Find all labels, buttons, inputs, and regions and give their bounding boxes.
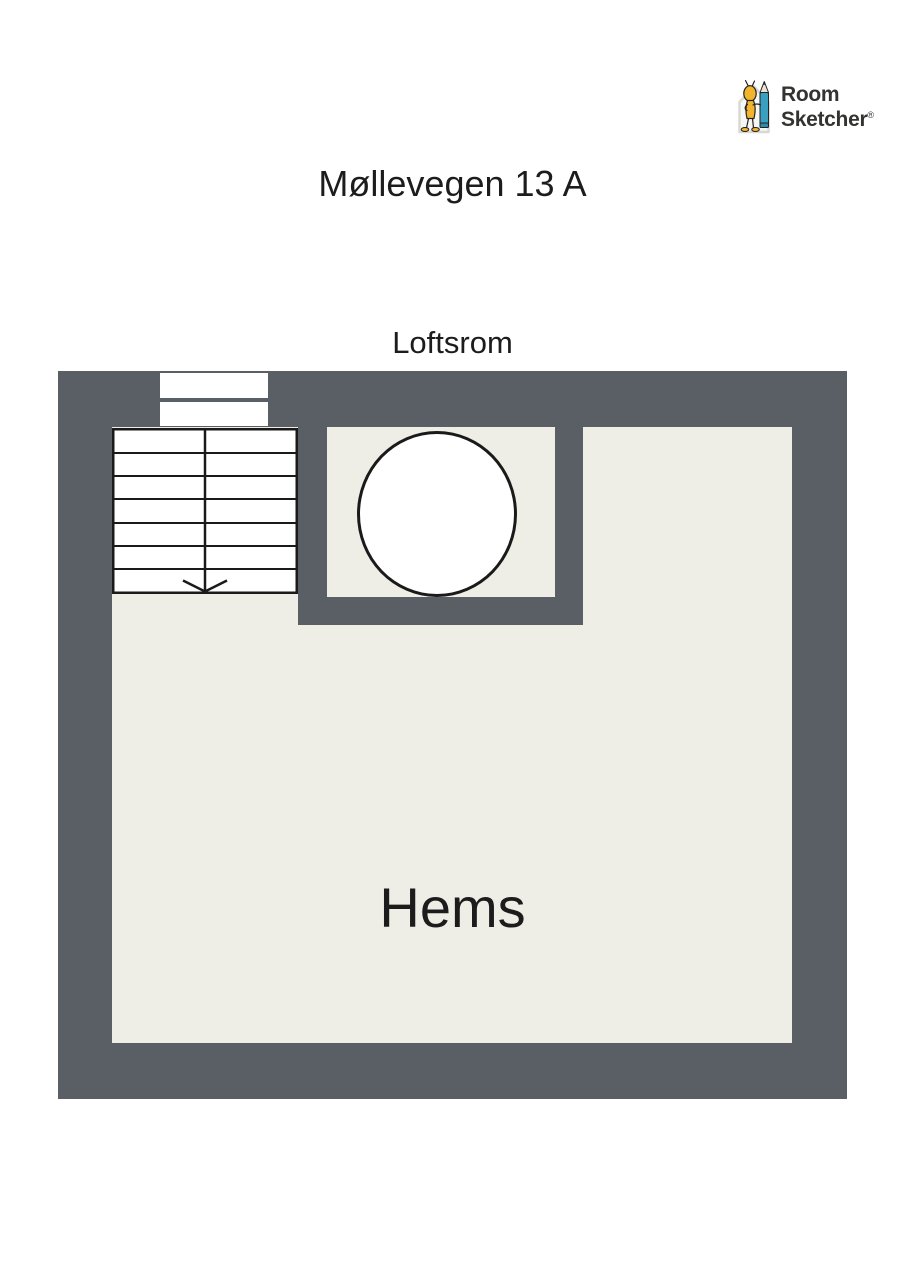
logo-wordmark: Room Sketcher® — [781, 79, 874, 130]
window — [160, 373, 268, 426]
floor-plan: Hems — [58, 371, 847, 1099]
logo-wordmark-line1: Room — [781, 85, 874, 105]
circular-opening — [357, 431, 517, 597]
registered-trademark: ® — [867, 110, 874, 120]
floor-name-label: Loftsrom — [0, 325, 905, 361]
page: Room Sketcher® Møllevegen 13 A Loftsrom — [0, 0, 905, 1280]
roomsketcher-logo: Room Sketcher® — [736, 79, 874, 137]
pencil-icon — [760, 82, 769, 128]
staircase — [112, 428, 298, 594]
roomsketcher-mascot-icon — [736, 79, 778, 137]
logo-wordmark-line2: Sketcher® — [781, 105, 874, 130]
room-name-label: Hems — [58, 878, 847, 938]
window-divider — [160, 398, 268, 402]
page-title: Møllevegen 13 A — [0, 162, 905, 206]
logo-wordmark-line2-text: Sketcher — [781, 108, 867, 131]
